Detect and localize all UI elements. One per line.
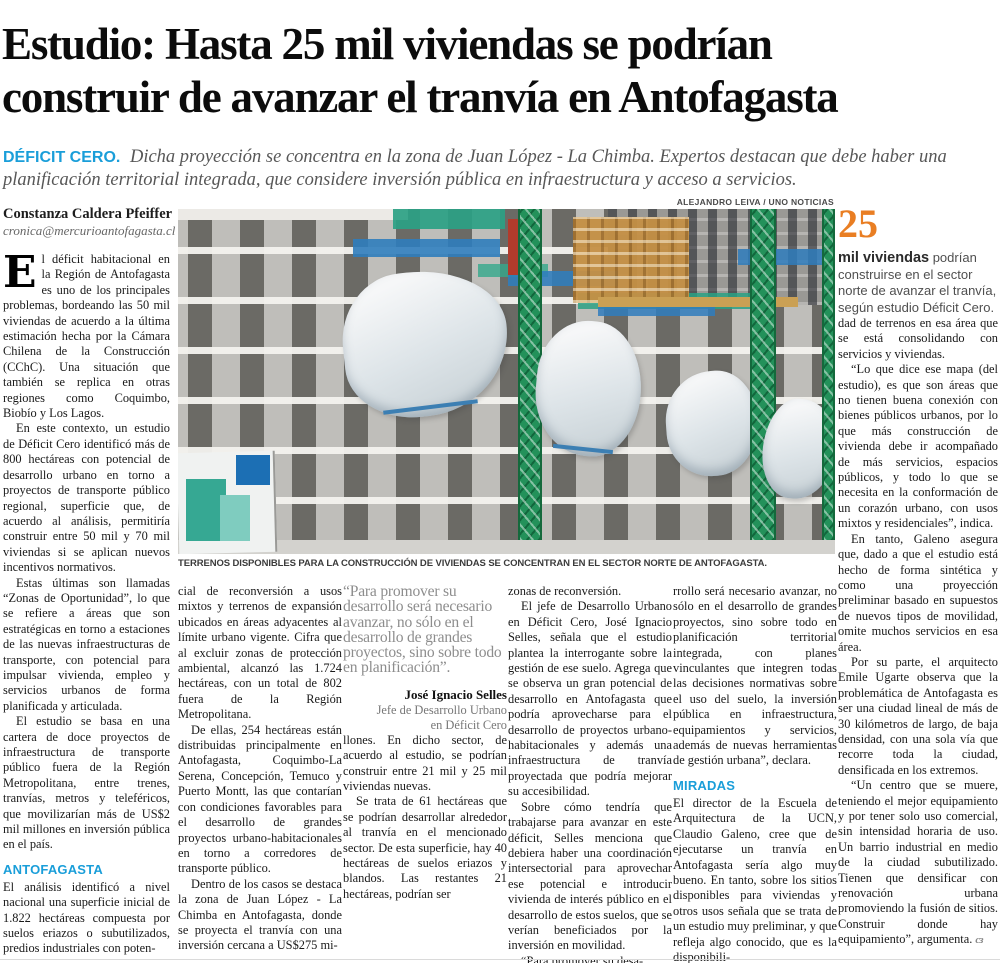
article-column-1: El déficit habitacional en la Región de … (3, 252, 170, 957)
paragraph: Sobre cómo tendría que trabajarse para a… (508, 800, 672, 954)
kicker-label: DÉFICIT CERO. (3, 149, 125, 166)
paragraph: De ellas, 254 hectáreas están distribuid… (178, 723, 342, 877)
paragraph: En tanto, Galeno asegura que, dado a que… (838, 532, 998, 655)
paragraph: Se trata de 61 hectáreas que se podrían … (343, 794, 507, 902)
drop-cap: E (3, 252, 42, 291)
headline-line1: Estudio: Hasta 25 mil viviendas se podrí… (2, 18, 998, 71)
article-photo (178, 209, 835, 554)
pull-quote-role: Jefe de Desarrollo Urbano (343, 703, 507, 718)
photo-wood-scaffold (573, 217, 689, 303)
article-column-3: “Para promover su desarrollo será necesa… (343, 584, 507, 902)
section-header-miradas: MIRADAS (673, 778, 837, 793)
paragraph: Estas últimas son llamadas “Zonas de Opo… (3, 576, 170, 715)
article-column-5: rrollo será necesario avanzar, no sólo e… (673, 584, 837, 963)
paragraph: En este contexto, un estudio de Déficit … (3, 421, 170, 575)
pull-quote: “Para promover su desarrollo será necesa… (343, 584, 507, 676)
pull-quote-author: José Ignacio Selles (343, 687, 507, 703)
paragraph: El estudio se basa en una cartera de doc… (3, 714, 170, 853)
paragraph: “Un centro que se muere, teniendo el mej… (838, 778, 998, 947)
paragraph: El déficit habitacional en la Región de … (3, 252, 170, 421)
pull-quote-role: en Déficit Cero (343, 718, 507, 733)
fact-bold-lead: mil viviendas (838, 250, 929, 266)
paragraph: El director de la Escuela de Arquitectur… (673, 796, 837, 963)
paragraph: cial de reconversión a usos mixtos y ter… (178, 584, 342, 723)
newspaper-article-page: Estudio: Hasta 25 mil viviendas se podrí… (0, 0, 1000, 963)
headline: Estudio: Hasta 25 mil viviendas se podrí… (2, 18, 998, 124)
paragraph: dad de terrenos en esa área que se está … (838, 316, 998, 362)
article-column-2: cial de reconversión a usos mixtos y ter… (178, 584, 342, 954)
bottom-divider (0, 959, 1000, 960)
paragraph: rrollo será necesario avanzar, no sólo e… (673, 584, 837, 769)
photo-blue-banner (353, 239, 500, 257)
paragraph: Por su parte, el arquitecto Emile Ugarte… (838, 655, 998, 778)
byline-email: cronica@mercurioantofagasta.cl (3, 223, 175, 239)
photo-teal-container-strip (393, 209, 505, 229)
kicker: DÉFICIT CERO. Dicha proyección se concen… (3, 146, 995, 192)
photo-crane-mast-right (750, 209, 776, 554)
paragraph: zonas de reconversión. (508, 584, 672, 599)
paragraph: El jefe de Desarrollo Urbano en Déficit … (508, 599, 672, 799)
sidebar-column: 25 mil viviendas podrían construirse en … (838, 205, 998, 948)
byline: Constanza Caldera Pfeiffer cronica@mercu… (3, 205, 175, 239)
photo-caption: TERRENOS DISPONIBLES PARA LA CONSTRUCCIÓ… (178, 558, 835, 569)
article-end-mark: cз (975, 934, 982, 946)
photo-sky-strip (178, 209, 408, 220)
photo-billboard-render (220, 495, 250, 541)
photo-crane-mast-edge (822, 209, 835, 554)
section-header-antofagasta: ANTOFAGASTA (3, 862, 170, 877)
byline-author: Constanza Caldera Pfeiffer (3, 205, 175, 223)
fact-number: 25 (838, 205, 998, 243)
kicker-text: Dicha proyección se concentra en la zona… (3, 147, 947, 190)
article-column-4: zonas de reconversión. El jefe de Desarr… (508, 584, 672, 963)
photo-credit: ALEJANDRO LEIVA / UNO NOTICIAS (178, 197, 834, 207)
paragraph: “Lo que dice ese mapa (del estudio), es … (838, 362, 998, 531)
paragraph: Dentro de los casos se destaca la zona d… (178, 877, 342, 954)
photo-billboard-logo (236, 455, 270, 485)
paragraph: llones. En dicho sector, de acuerdo al e… (343, 733, 507, 795)
paragraph-text: “Un centro que se muere, teniendo el mej… (838, 778, 998, 946)
fact-text: mil viviendas podrían construirse en el … (838, 250, 998, 316)
headline-line2: construir de avanzar el tranvía en Antof… (2, 71, 998, 124)
paragraph: El análisis identificó a nivel nacional … (3, 880, 170, 957)
